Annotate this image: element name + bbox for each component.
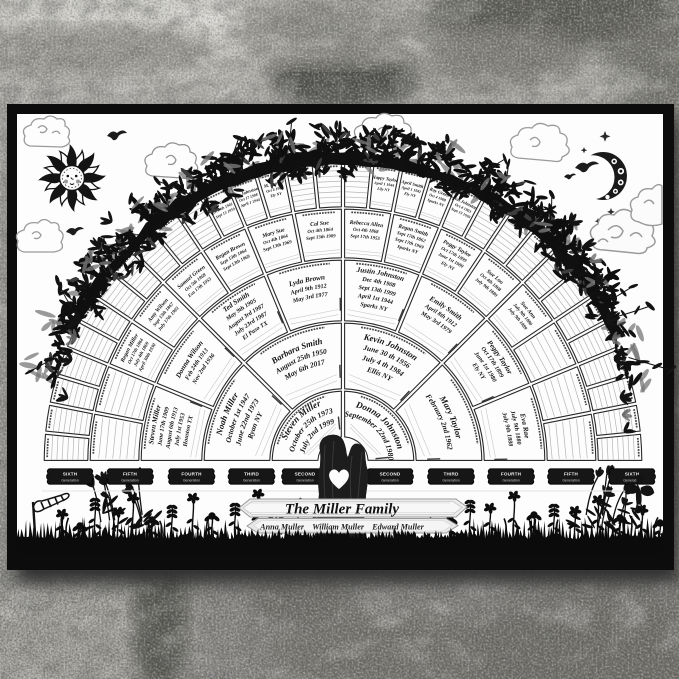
svg-text:Generation: Generation: [243, 479, 260, 483]
svg-text:Anna Muller William Muller: Anna Muller William Muller Edward Muller: [259, 523, 425, 532]
svg-text:FOURTH: FOURTH: [181, 472, 202, 477]
svg-text:Generation: Generation: [121, 479, 138, 483]
svg-text:Generation: Generation: [381, 479, 398, 483]
svg-text:Generation: Generation: [183, 479, 200, 483]
svg-text:Generation: Generation: [61, 479, 78, 483]
svg-text:SIXTH: SIXTH: [63, 472, 78, 477]
svg-text:SECOND: SECOND: [295, 472, 316, 477]
svg-text:Generation: Generation: [562, 479, 579, 483]
svg-text:FIFTH: FIFTH: [564, 472, 578, 477]
svg-text:Generation: Generation: [296, 479, 313, 483]
svg-text:FIFTH: FIFTH: [123, 472, 137, 477]
svg-text:THIRD: THIRD: [443, 472, 459, 477]
svg-text:Generation: Generation: [502, 479, 519, 483]
svg-text:THIRD: THIRD: [244, 472, 260, 477]
svg-text:FOURTH: FOURTH: [501, 472, 522, 477]
svg-text:The Miller Family: The Miller Family: [285, 502, 400, 518]
svg-text:SECOND: SECOND: [380, 472, 401, 477]
svg-text:Generation: Generation: [442, 479, 459, 483]
